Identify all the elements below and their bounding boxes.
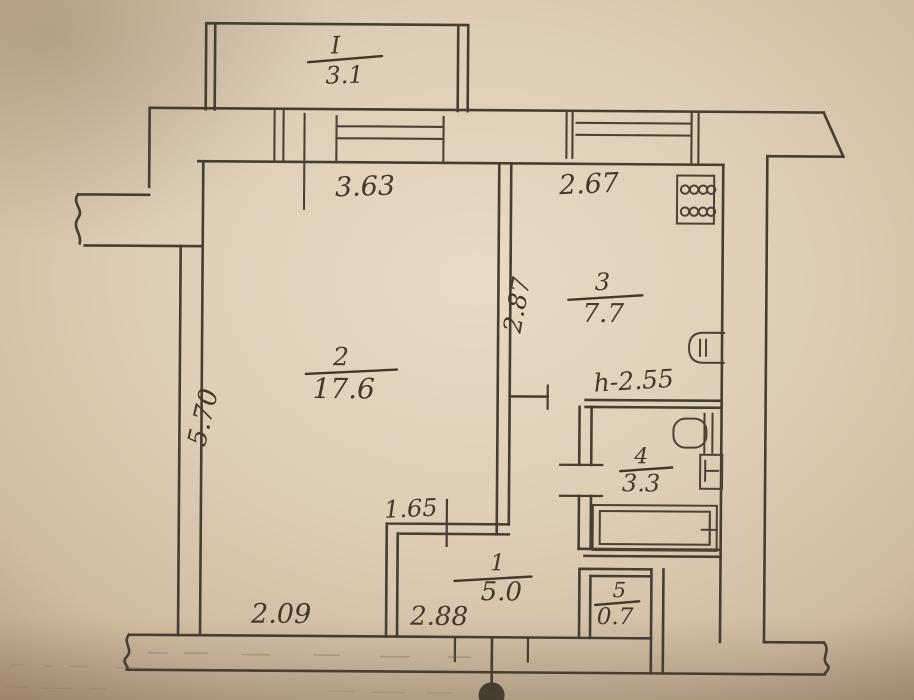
room-number: 1 [490, 550, 505, 576]
dim-bottom-middle: 2.88 [409, 602, 468, 632]
ceiling-height-note: h-2.55 [593, 364, 675, 398]
balcony-area: 3.1 [325, 61, 364, 90]
room-area: 17.6 [312, 372, 375, 405]
dim-kitchen-top: 2.67 [557, 168, 620, 202]
room-number: 5 [613, 578, 627, 602]
room-area: 7.7 [582, 299, 624, 329]
room-number: 4 [633, 444, 648, 469]
balcony-number: I [330, 31, 342, 59]
room-area: 0.7 [597, 604, 634, 630]
dim-nook: 1.65 [383, 493, 438, 523]
room-area: 5.0 [481, 577, 523, 607]
floor-plan-photo: I 3.1 2 17.6 3 7.7 4 3.3 1 5.0 5 0.7 [0, 0, 914, 700]
room-number: 3 [595, 268, 610, 296]
floor-plan-svg: I 3.1 2 17.6 3 7.7 4 3.3 1 5.0 5 0.7 [0, 0, 914, 700]
room-number: 2 [332, 342, 349, 371]
dim-living-top: 3.63 [335, 171, 396, 204]
room-area: 3.3 [622, 469, 660, 497]
dim-bottom-left: 2.09 [250, 599, 311, 630]
